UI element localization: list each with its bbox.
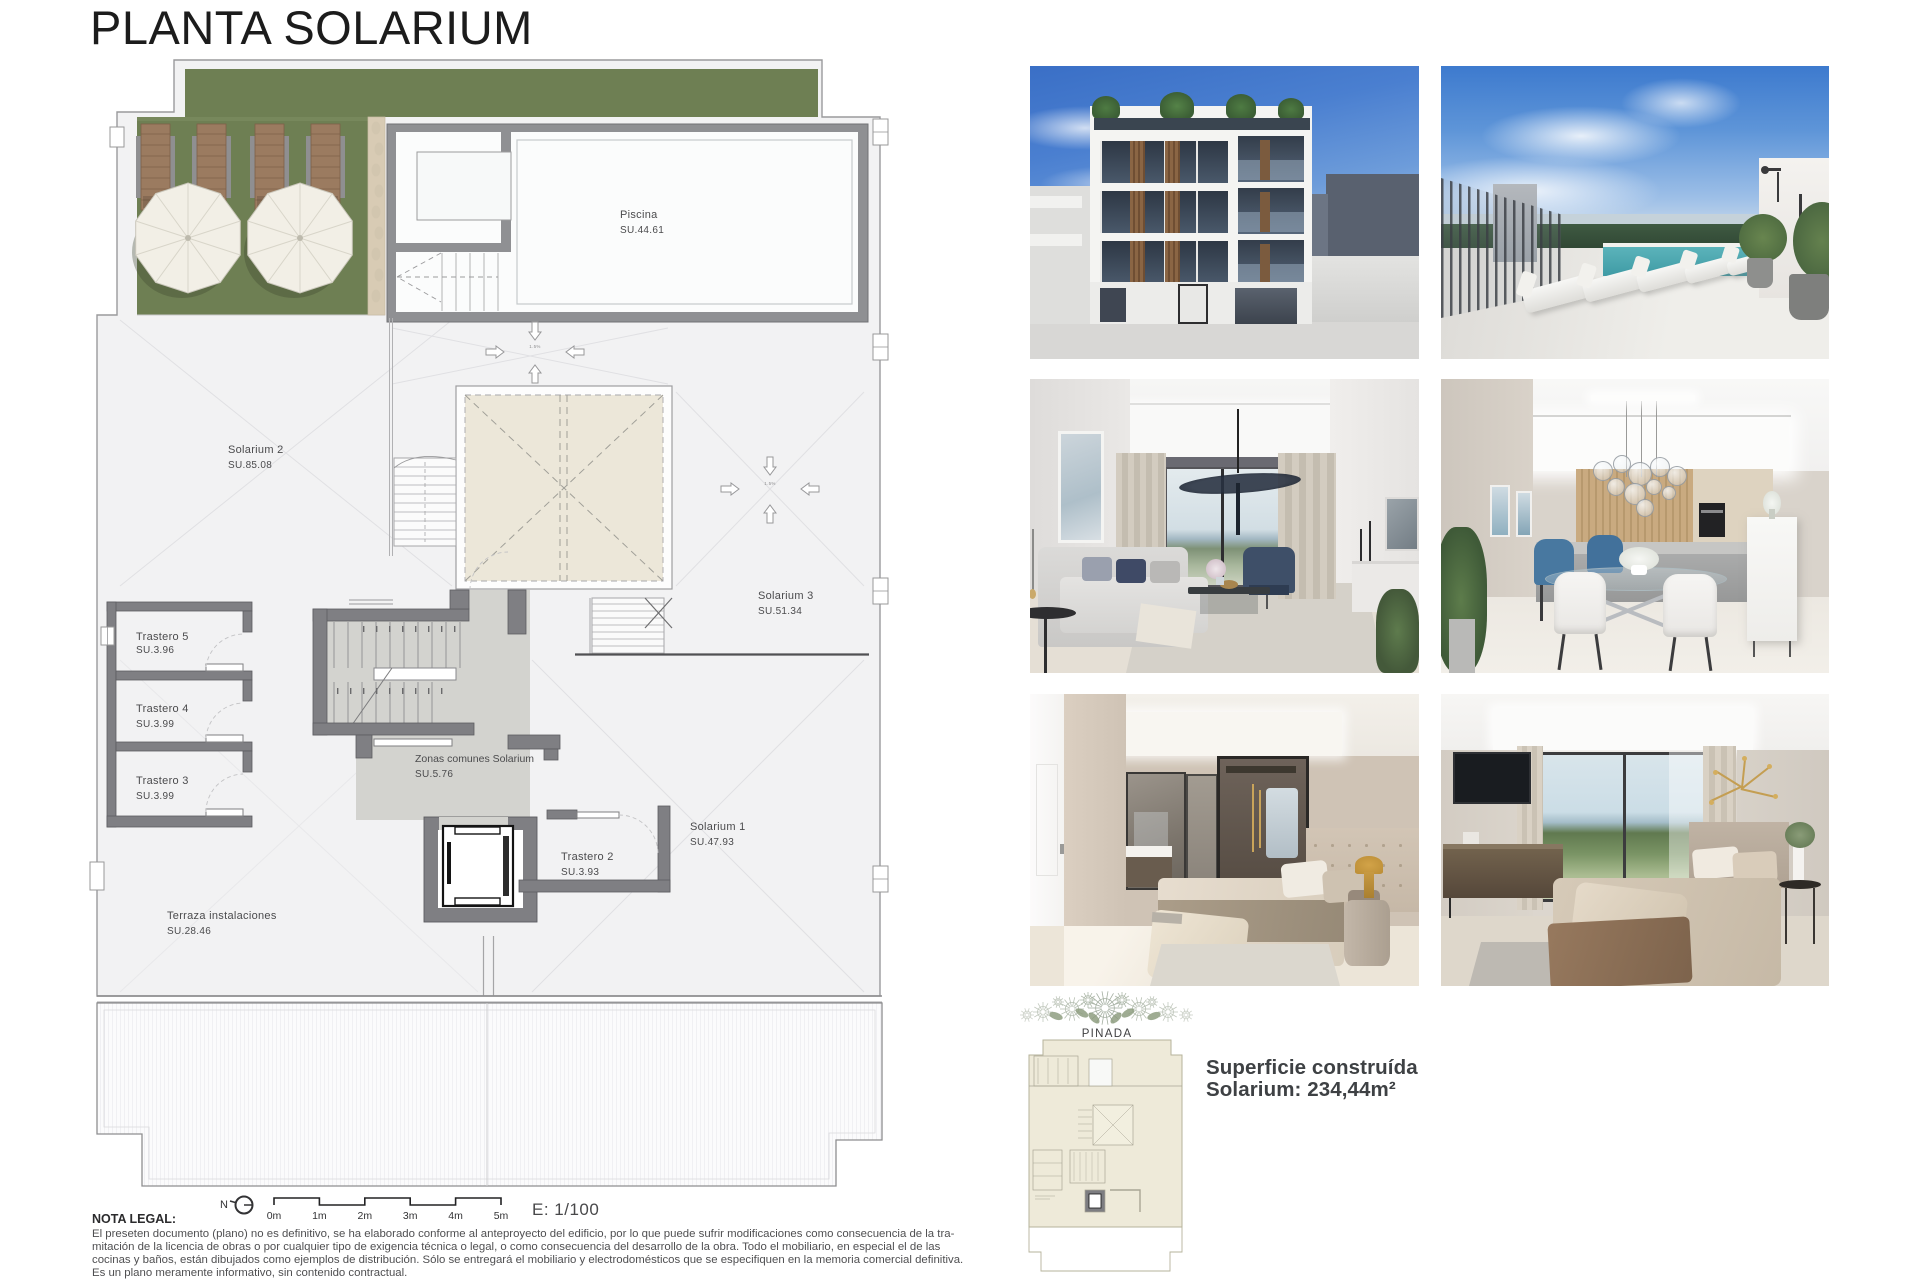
svg-text:Piscina: Piscina — [620, 209, 658, 221]
svg-text:Trastero 2: Trastero 2 — [561, 851, 614, 863]
svg-text:Solarium 2: Solarium 2 — [228, 444, 284, 456]
svg-text:1.5%: 1.5% — [529, 344, 540, 349]
svg-text:Trastero 3: Trastero 3 — [136, 775, 189, 787]
svg-text:1.5%: 1.5% — [764, 481, 775, 486]
svg-text:SU.3.99: SU.3.99 — [136, 719, 174, 730]
svg-text:SU.85.08: SU.85.08 — [228, 460, 272, 471]
svg-text:SU.51.34: SU.51.34 — [758, 606, 802, 617]
svg-text:PINADA: PINADA — [1082, 1028, 1133, 1040]
svg-text:Solarium 1: Solarium 1 — [690, 821, 746, 833]
svg-text:SU.3.93: SU.3.93 — [561, 867, 599, 878]
svg-text:SU.28.46: SU.28.46 — [167, 926, 211, 937]
svg-text:N: N — [220, 1199, 228, 1211]
svg-text:SU.3.99: SU.3.99 — [136, 791, 174, 802]
svg-text:Terraza instalaciones: Terraza instalaciones — [167, 910, 277, 922]
svg-text:SU.44.61: SU.44.61 — [620, 225, 664, 236]
svg-text:SU.5.76: SU.5.76 — [415, 769, 453, 780]
svg-text:Trastero 4: Trastero 4 — [136, 703, 189, 715]
svg-text:Trastero 5: Trastero 5 — [136, 631, 189, 643]
svg-text:SU.47.93: SU.47.93 — [690, 837, 734, 848]
svg-text:Zonas comunes Solarium: Zonas comunes Solarium — [415, 753, 534, 765]
svg-text:SU.3.96: SU.3.96 — [136, 645, 174, 656]
svg-text:Solarium 3: Solarium 3 — [758, 590, 814, 602]
